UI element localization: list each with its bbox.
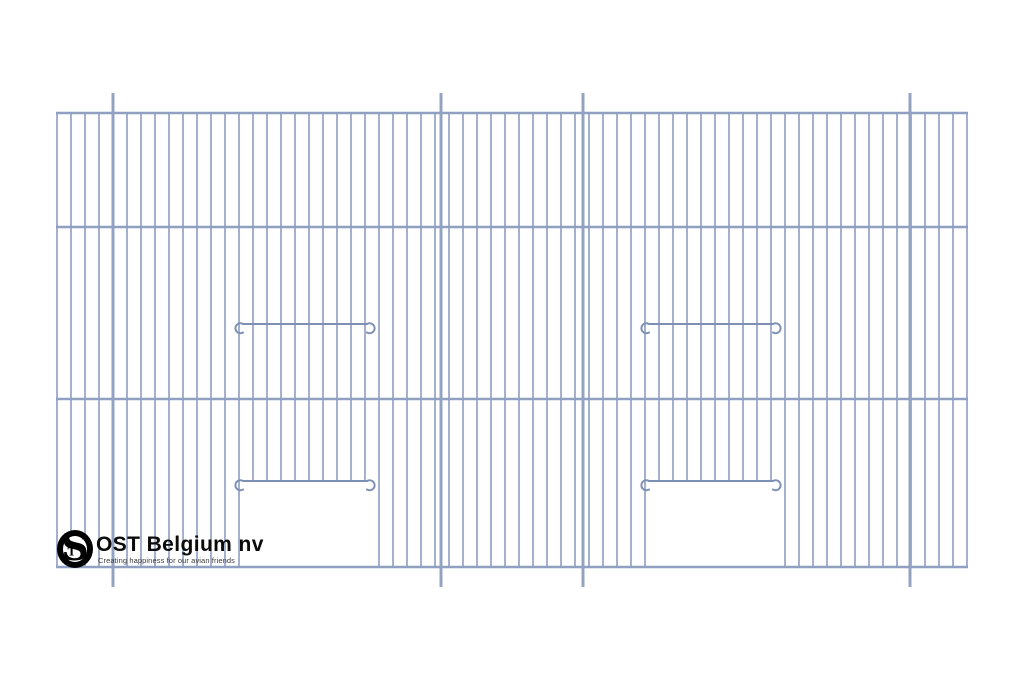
hook-rail bbox=[641, 480, 780, 490]
hook-rail bbox=[235, 480, 374, 490]
cage-front-panel-drawing bbox=[0, 0, 1024, 683]
frame-posts bbox=[113, 93, 910, 587]
hook-rail bbox=[235, 323, 374, 333]
hook-rail bbox=[641, 323, 780, 333]
product-image-canvas: S T OST Belgium nv Creating happiness fo… bbox=[0, 0, 1024, 683]
horizontal-frame-bars bbox=[56, 113, 968, 567]
door-hook-rails bbox=[235, 323, 780, 490]
vertical-wires bbox=[57, 113, 967, 567]
